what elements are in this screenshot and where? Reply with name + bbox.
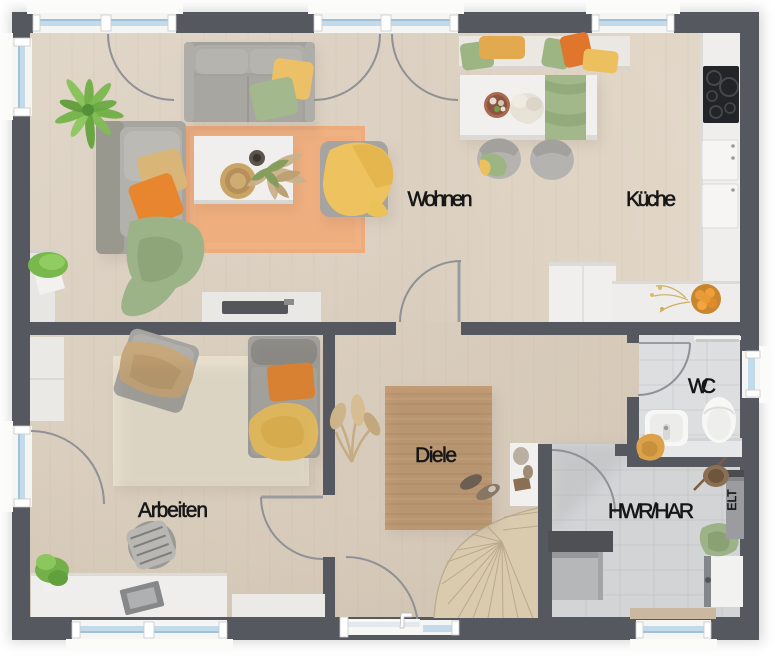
svg-text:Arbeiten: Arbeiten (138, 499, 208, 522)
svg-text:Küche: Küche (626, 188, 676, 211)
svg-text:HWR/HAR: HWR/HAR (608, 500, 694, 523)
svg-text:Diele: Diele (415, 444, 457, 467)
svg-text:ELT: ELT (725, 489, 739, 511)
svg-text:WC: WC (688, 375, 716, 398)
svg-text:Wohnen: Wohnen (408, 188, 473, 211)
